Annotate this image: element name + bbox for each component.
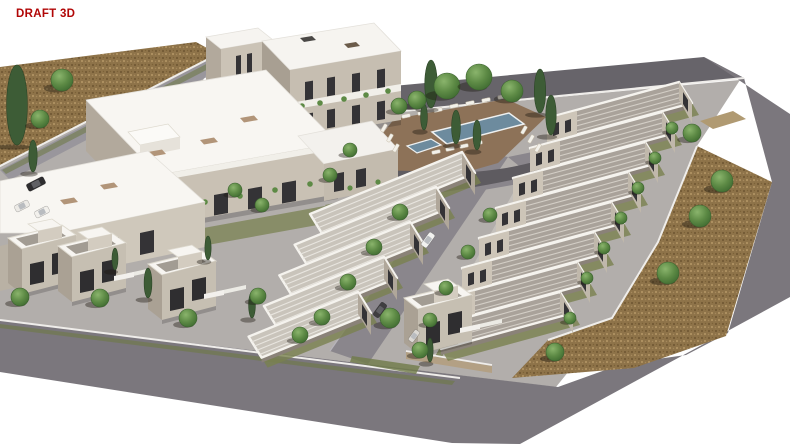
round-tree <box>546 343 564 361</box>
row-window <box>548 149 554 163</box>
round-tree <box>408 91 426 109</box>
round-tree <box>666 122 678 134</box>
round-tree <box>11 288 29 306</box>
round-tree <box>501 80 523 102</box>
round-tree <box>689 205 711 227</box>
render-canvas: DRAFT 3D <box>0 0 790 445</box>
round-tree <box>598 242 610 254</box>
tree-shadow <box>537 134 557 139</box>
round-tree <box>564 312 576 324</box>
row-window <box>485 242 491 256</box>
tree-shadow <box>419 361 434 366</box>
round-tree <box>581 272 593 284</box>
tree-shadow <box>443 143 461 148</box>
round-tree <box>632 182 644 194</box>
cypress-tree <box>534 69 545 113</box>
cypress-tree <box>144 268 152 298</box>
round-tree <box>255 198 269 212</box>
villa-window <box>30 261 44 285</box>
round-tree <box>434 73 460 99</box>
round-tree <box>412 342 428 358</box>
round-tree <box>323 168 337 182</box>
round-tree <box>392 204 408 220</box>
round-tree <box>657 262 679 284</box>
cypress-tree <box>205 236 211 260</box>
cypress-tree <box>112 248 118 270</box>
row-window <box>497 239 503 253</box>
round-tree <box>292 327 308 343</box>
cypress-tree <box>452 110 461 144</box>
row-window <box>519 182 525 196</box>
round-tree <box>91 289 109 307</box>
tree-shadow <box>104 269 118 274</box>
round-tree <box>51 69 73 91</box>
round-tree <box>423 313 437 327</box>
round-tree <box>483 208 497 222</box>
tree-shadow <box>465 149 482 154</box>
round-tree <box>340 274 356 290</box>
cypress-tree <box>546 95 556 135</box>
row-window <box>531 179 537 193</box>
tree-shadow <box>20 171 38 176</box>
round-tree <box>314 309 330 325</box>
round-tree <box>615 212 627 224</box>
villa-window <box>80 269 94 293</box>
tree-shadow <box>136 297 153 302</box>
round-tree <box>343 143 357 157</box>
row-window <box>565 119 571 133</box>
cypress-tree <box>473 120 481 150</box>
round-tree <box>466 64 492 90</box>
villa-window <box>192 277 206 301</box>
tree-shadow <box>412 129 427 134</box>
villa-window <box>170 287 184 311</box>
row-window <box>468 272 474 286</box>
round-tree <box>179 309 197 327</box>
villa-window <box>448 311 462 335</box>
row-window <box>480 269 486 283</box>
round-tree <box>391 98 407 114</box>
round-tree <box>366 239 382 255</box>
round-tree <box>649 152 661 164</box>
round-tree <box>250 288 266 304</box>
round-tree <box>228 183 242 197</box>
round-tree <box>683 124 701 142</box>
row-window <box>502 212 508 226</box>
tree-shadow <box>197 259 212 264</box>
row-window <box>536 152 542 166</box>
round-tree <box>461 245 475 259</box>
tree-shadow <box>525 112 547 117</box>
cypress-tree <box>7 65 28 145</box>
round-tree <box>31 110 49 128</box>
cypress-tree <box>29 140 37 172</box>
draft-label: DRAFT 3D <box>16 8 75 20</box>
round-tree <box>439 281 453 295</box>
row-window <box>514 209 520 223</box>
round-tree <box>711 170 733 192</box>
tree-shadow <box>240 317 255 322</box>
site-render <box>0 0 790 445</box>
